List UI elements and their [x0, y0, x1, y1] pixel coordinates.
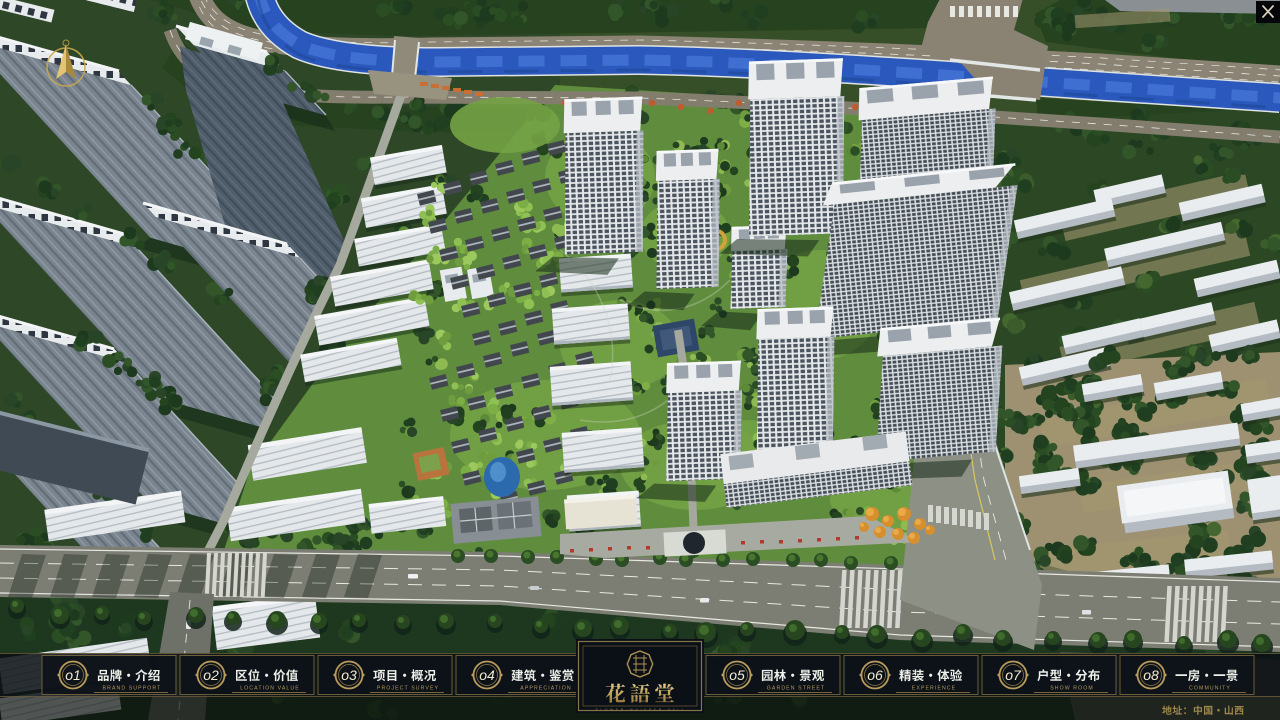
svg-text:o5: o5	[729, 667, 745, 683]
svg-text:F L O W E R · W H I S P E R ·: F L O W E R · W H I S P E R · H A L L	[596, 708, 685, 712]
svg-text:LOCATION VALUE: LOCATION VALUE	[240, 686, 300, 692]
svg-text:PROJECT SURVEY: PROJECT SURVEY	[377, 686, 439, 692]
svg-text:APPRECIATION: APPRECIATION	[520, 686, 571, 692]
svg-text:o4: o4	[479, 667, 495, 683]
svg-text:o7: o7	[1005, 667, 1022, 683]
svg-text:COMMUNITY: COMMUNITY	[1189, 686, 1231, 692]
svg-text:GARDEN STREET: GARDEN STREET	[767, 686, 825, 692]
svg-text:o3: o3	[341, 667, 357, 683]
svg-text:SHOW ROOM: SHOW ROOM	[1050, 686, 1094, 692]
svg-text:o1: o1	[65, 667, 81, 683]
svg-text:o8: o8	[1143, 667, 1159, 683]
svg-text:BRAND SUPPORT: BRAND SUPPORT	[103, 686, 162, 692]
svg-text:o6: o6	[867, 667, 883, 683]
svg-text:EXPERIENCE: EXPERIENCE	[912, 686, 956, 692]
svg-text:o2: o2	[203, 667, 219, 683]
